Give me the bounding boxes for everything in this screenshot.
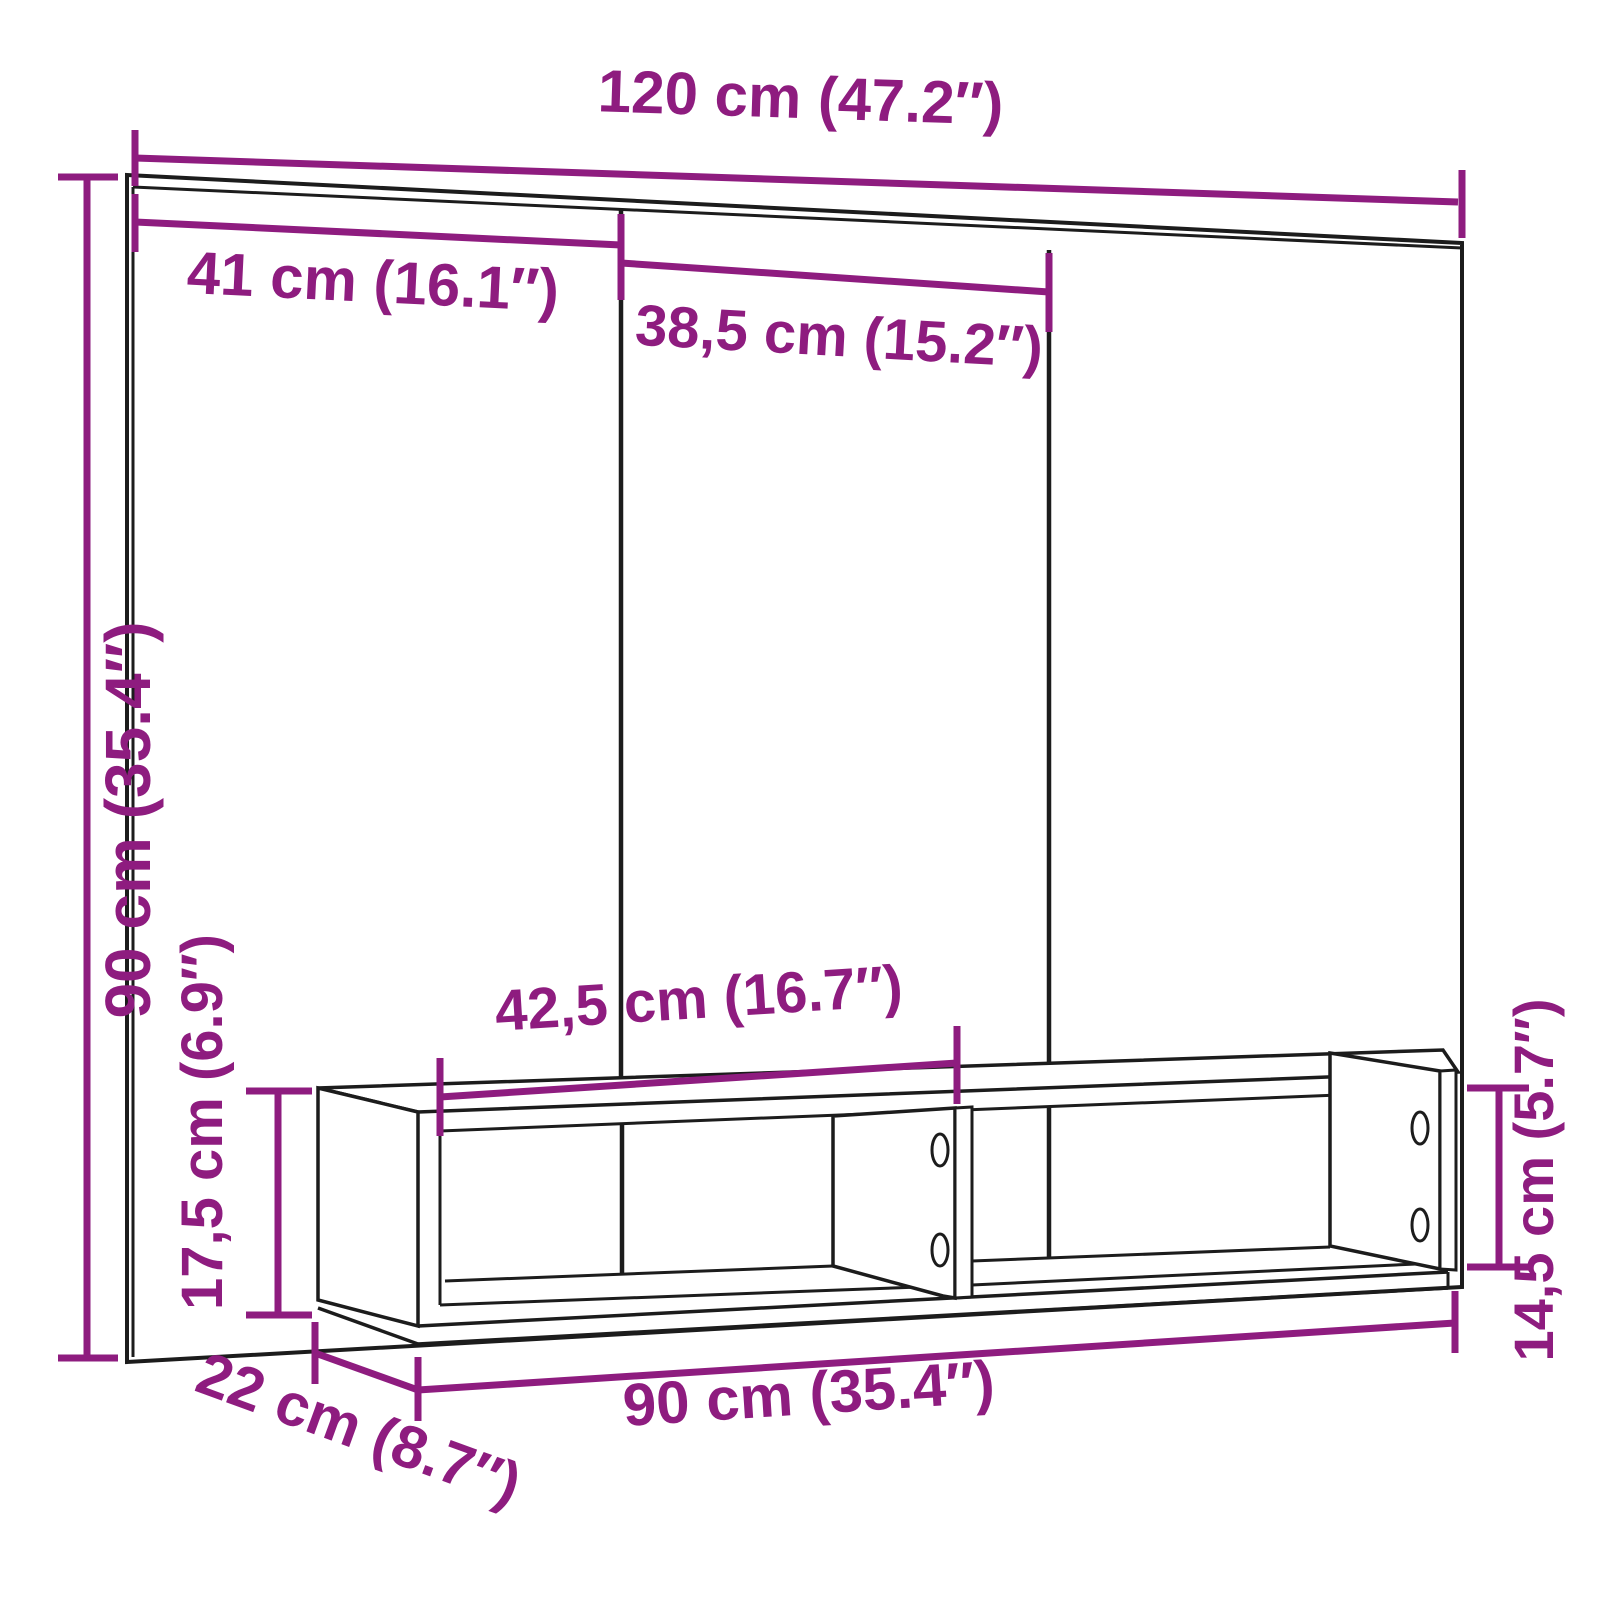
dim-label-shelf-outer-height: 17,5 cm (6.9″) — [170, 934, 235, 1310]
shelf-left-end-face — [318, 1088, 418, 1326]
shelf-right-end-inner-face — [1330, 1053, 1440, 1269]
dim-label-overall-height: 90 cm (35.4″) — [92, 621, 164, 1018]
dim-label-shelf-width: 90 cm (35.4″) — [621, 1348, 997, 1439]
dimension-diagram: 120 cm (47.2″) 41 cm (16.1″) 38,5 cm (15… — [0, 0, 1600, 1600]
dimension-shelf-depth: 22 cm (8.7″) — [188, 1322, 529, 1518]
dim-label-shelf-inner-height: 14,5 cm (5.7″) — [1502, 998, 1565, 1361]
shelf-right-end-front-edge — [1440, 1070, 1456, 1270]
dim-label-total-width: 120 cm (47.2″) — [597, 57, 1005, 137]
dimension-shelf-inner-height: 14,5 cm (5.7″) — [1467, 998, 1565, 1361]
furniture-dimension-drawing: 120 cm (47.2″) 41 cm (16.1″) 38,5 cm (15… — [0, 0, 1600, 1600]
shelf-middle-divider-front-edge — [955, 1107, 972, 1298]
